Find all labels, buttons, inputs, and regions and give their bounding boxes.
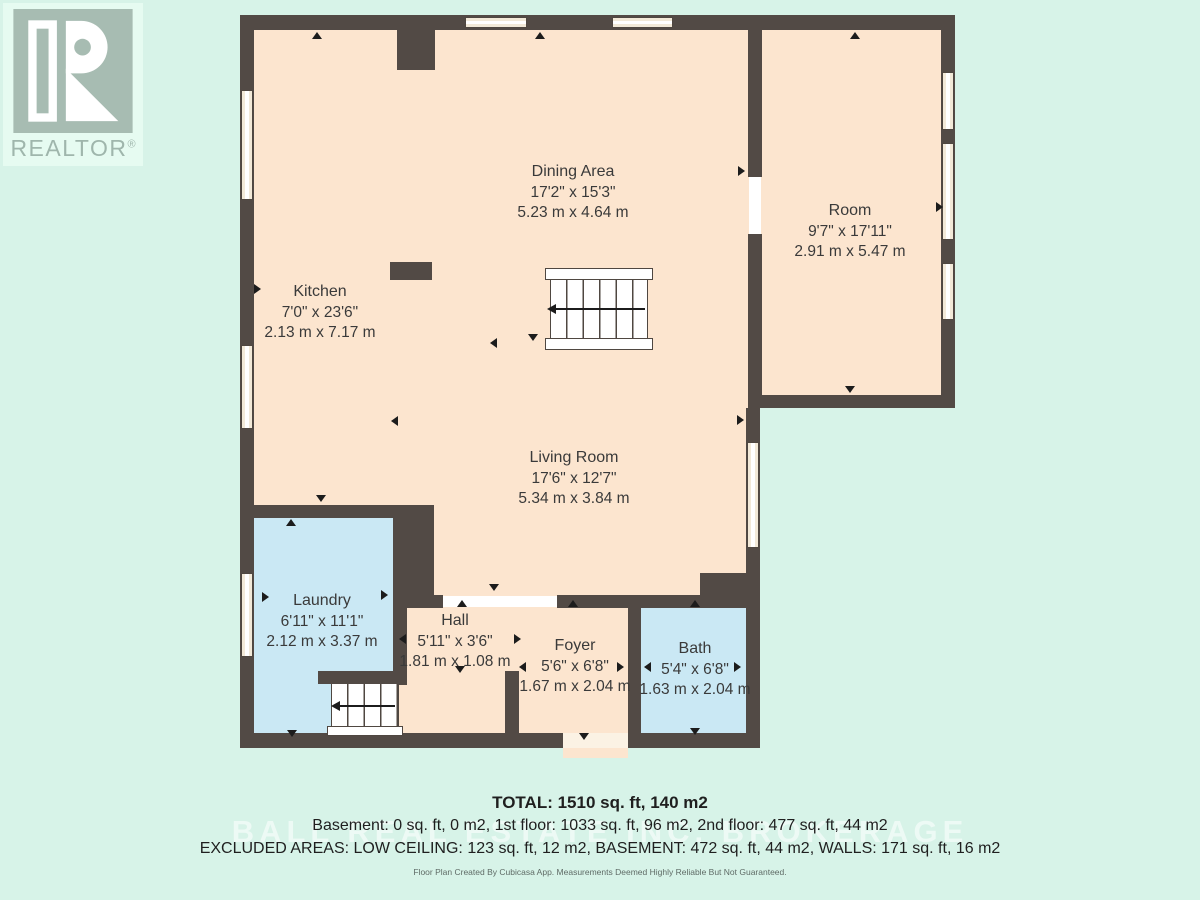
room-dims-metric: 1.63 m x 2.04 m — [605, 680, 785, 700]
realtor-logo-icon — [13, 9, 133, 133]
room-name: Living Room — [444, 448, 704, 468]
realtor-logo: REALTOR® — [3, 3, 143, 166]
window — [241, 90, 253, 200]
stair-landing — [327, 726, 403, 736]
room-dims-imperial: 9'7" x 17'11" — [740, 222, 960, 242]
stair-direction-arrow — [547, 304, 556, 314]
room-name: Kitchen — [210, 282, 430, 302]
room-dims-metric: 2.91 m x 5.47 m — [740, 242, 960, 262]
door-marker-icon — [312, 32, 322, 39]
floor-areas: Basement: 0 sq. ft, 0 m2, 1st floor: 103… — [0, 814, 1200, 837]
room-name: Hall — [365, 611, 545, 631]
wall-segment — [748, 15, 762, 177]
door-marker-icon — [690, 600, 700, 607]
window — [747, 442, 759, 548]
stairs-main — [545, 268, 653, 350]
wall-segment — [397, 30, 435, 70]
wall-segment — [407, 595, 443, 608]
door-marker-icon — [287, 730, 297, 737]
disclaimer-text: Floor Plan Created By Cubicasa App. Meas… — [0, 867, 1200, 877]
window — [465, 17, 527, 28]
wall-segment — [700, 573, 748, 597]
stair-run-line — [339, 705, 395, 707]
room-label-room: Room 9'7" x 17'11" 2.91 m x 5.47 m — [740, 201, 960, 262]
door-marker-icon — [457, 600, 467, 607]
room-dims-imperial: 17'6" x 12'7" — [444, 469, 704, 489]
stairs-basement — [331, 684, 401, 736]
stair-landing — [545, 268, 653, 280]
room-name: Laundry — [232, 591, 412, 611]
room-dims-imperial: 5'4" x 6'8" — [605, 660, 785, 680]
window — [942, 263, 954, 320]
stair-direction-arrow — [331, 701, 340, 711]
door-marker-icon — [845, 386, 855, 393]
room-dims-imperial: 17'2" x 15'3" — [443, 183, 703, 203]
door-marker-icon — [391, 416, 398, 426]
wall-segment — [628, 733, 760, 748]
room-label-kitchen: Kitchen 7'0" x 23'6" 2.13 m x 7.17 m — [210, 282, 430, 343]
room-name: Room — [740, 201, 960, 221]
wall-segment — [240, 15, 955, 30]
total-area: TOTAL: 1510 sq. ft, 140 m2 — [0, 791, 1200, 814]
door-marker-icon — [850, 32, 860, 39]
door-marker-icon — [489, 584, 499, 591]
room-label-bath: Bath 5'4" x 6'8" 1.63 m x 2.04 m — [605, 639, 785, 700]
window — [942, 72, 954, 130]
window — [612, 17, 673, 28]
door-marker-icon — [535, 32, 545, 39]
room-dims-metric: 5.34 m x 3.84 m — [444, 489, 704, 509]
door-marker-icon — [286, 519, 296, 526]
door-marker-icon — [579, 733, 589, 740]
floor-plan-page: REALTOR® Dining Area 17'2" x 15'3" 5.23 … — [0, 0, 1200, 900]
wall-segment — [390, 262, 432, 280]
room-dims-metric: 2.13 m x 7.17 m — [210, 323, 430, 343]
wall-segment — [393, 505, 434, 600]
door-marker-icon — [490, 338, 497, 348]
realtor-wordmark: REALTOR® — [10, 135, 135, 162]
door-marker-icon — [738, 166, 745, 176]
room-label-dining: Dining Area 17'2" x 15'3" 5.23 m x 4.64 … — [443, 162, 703, 223]
room-dims-metric: 5.23 m x 4.64 m — [443, 203, 703, 223]
door-marker-icon — [737, 415, 744, 425]
door-marker-icon — [690, 728, 700, 735]
window — [241, 345, 253, 429]
wall-segment — [318, 671, 407, 684]
wall-segment — [748, 395, 955, 408]
wall-segment — [240, 505, 407, 518]
door-marker-icon — [568, 600, 578, 607]
area-summary: TOTAL: 1510 sq. ft, 140 m2 Basement: 0 s… — [0, 791, 1200, 860]
stair-landing — [545, 338, 653, 350]
registered-mark: ® — [127, 138, 135, 150]
door-marker-icon — [316, 495, 326, 502]
threshold-front-door — [563, 733, 628, 748]
room-name: Bath — [605, 639, 785, 659]
door-marker-icon — [528, 334, 538, 341]
excluded-areas: EXCLUDED AREAS: LOW CEILING: 123 sq. ft,… — [0, 837, 1200, 860]
stair-run-line — [555, 308, 645, 310]
room-name: Dining Area — [443, 162, 703, 182]
room-label-living: Living Room 17'6" x 12'7" 5.34 m x 3.84 … — [444, 448, 704, 509]
room-dims-imperial: 7'0" x 23'6" — [210, 303, 430, 323]
